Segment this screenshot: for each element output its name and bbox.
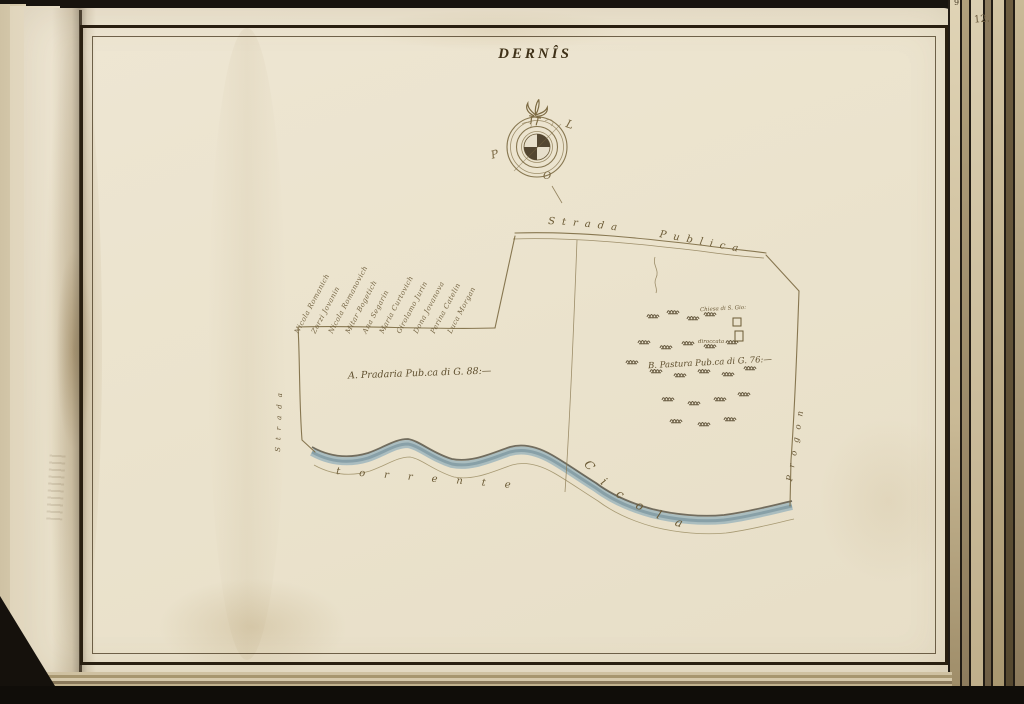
page-bottom-edges [30, 672, 952, 687]
atlas-scan: Strada Publica torrente Cicola DERNÎS L … [0, 0, 1024, 704]
page-edge-strip [1015, 0, 1024, 704]
book-bottom-edge [0, 686, 1024, 704]
page-edge-strip [985, 0, 991, 704]
page-edges-right [948, 0, 1024, 704]
folio-number: 12. [974, 13, 991, 25]
page-edge-strip [950, 0, 960, 704]
compass-south-letter: O [543, 171, 551, 182]
corner-number: 9 [954, 0, 959, 7]
page-edge-strip [1006, 0, 1013, 704]
page-edge-strip [962, 0, 969, 704]
page-title: DERNÎS [470, 46, 600, 63]
page-edge-strip [971, 0, 983, 704]
page-edge-strip [993, 0, 1004, 704]
map-border-inner [92, 36, 936, 654]
chapel-sublabel: diroccata [698, 339, 724, 345]
